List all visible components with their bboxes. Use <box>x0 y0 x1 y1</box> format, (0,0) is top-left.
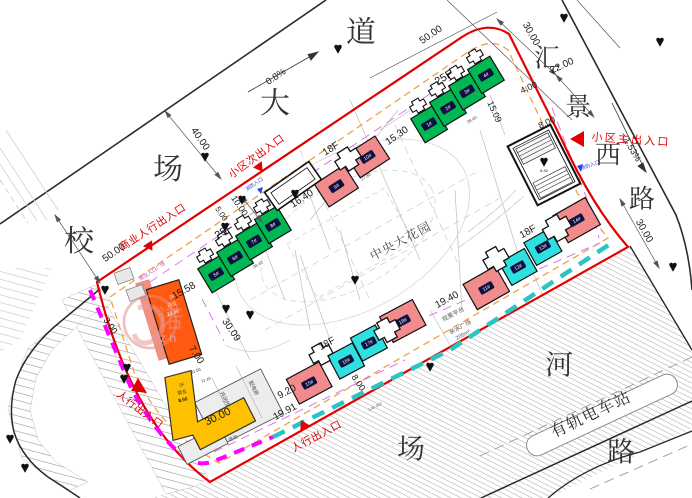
svg-text:8.30: 8.30 <box>540 168 549 173</box>
svg-text:z h: z h <box>160 331 176 345</box>
